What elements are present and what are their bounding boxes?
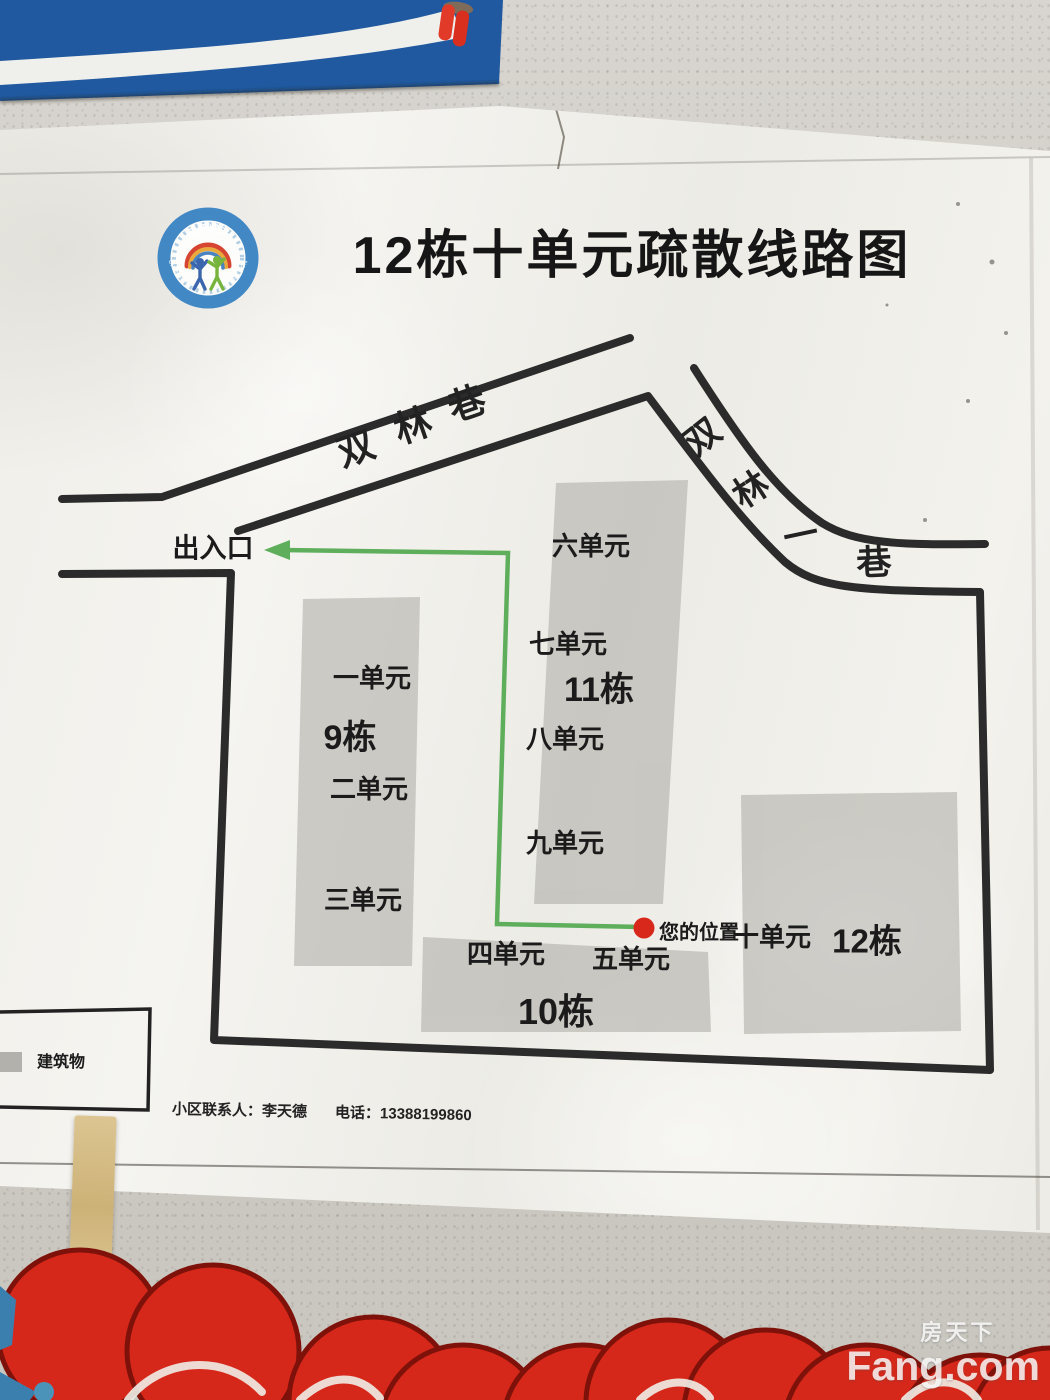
red-wall-decoration [0, 0, 1050, 1400]
photo-of-evacuation-sign: 成都减灾 CHENGDU DISASTER REDUCTION 12栋十单元疏散… [0, 0, 1050, 1400]
watermark-en: Fang.com [846, 1343, 1040, 1390]
fang-watermark: 房天下 Fang.com [846, 1315, 1040, 1390]
